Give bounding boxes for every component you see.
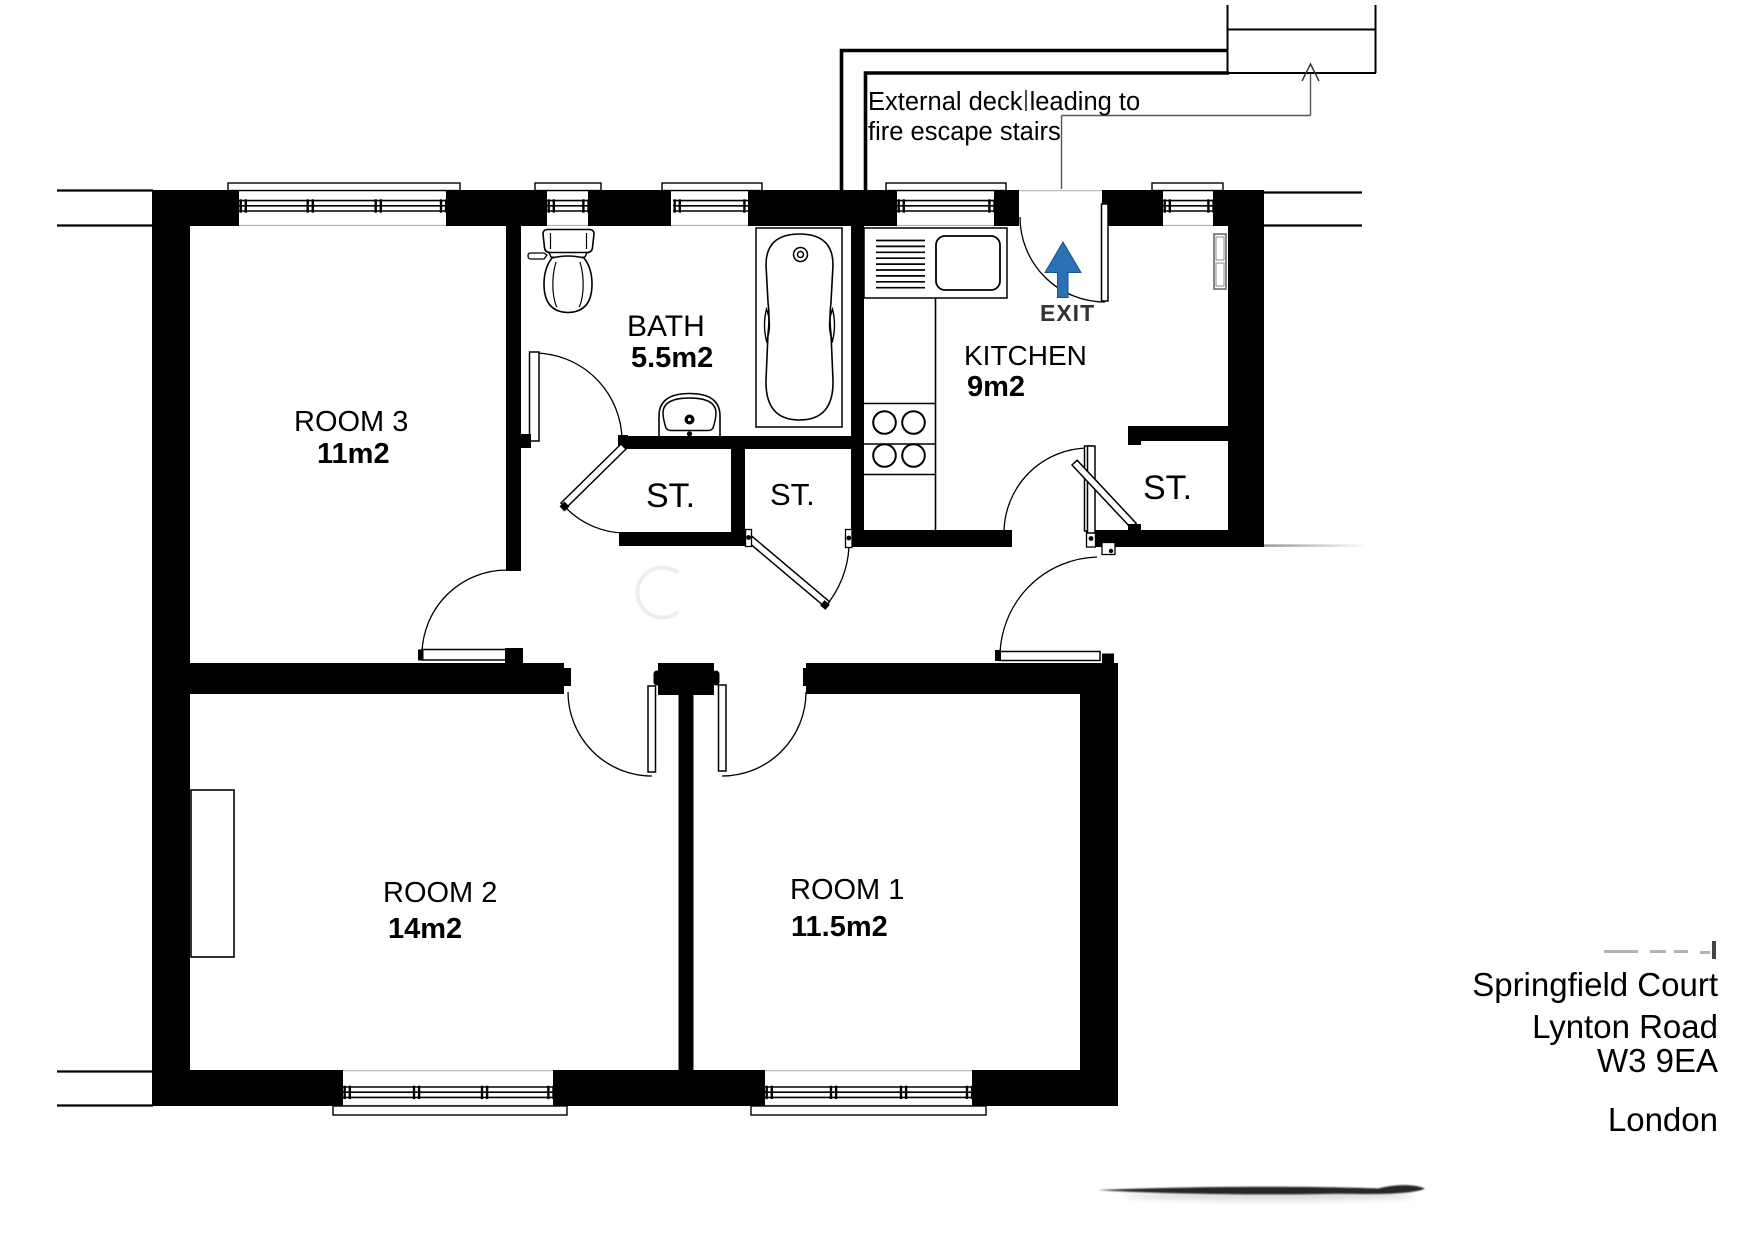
svg-text:ST.: ST. xyxy=(770,477,815,512)
svg-text:5.5m2: 5.5m2 xyxy=(631,342,713,374)
svg-text:ST.: ST. xyxy=(1143,469,1192,507)
svg-text:ROOM 3: ROOM 3 xyxy=(294,406,408,438)
svg-text:11.5m2: 11.5m2 xyxy=(791,911,888,943)
svg-text:London: London xyxy=(1608,1101,1718,1138)
svg-text:BATH: BATH xyxy=(627,310,705,343)
svg-text:KITCHEN: KITCHEN xyxy=(964,340,1087,371)
svg-text:11m2: 11m2 xyxy=(317,438,390,470)
svg-text:ST.: ST. xyxy=(646,477,695,515)
svg-text:Springfield Court: Springfield Court xyxy=(1472,966,1718,1003)
svg-text:Lynton Road: Lynton Road xyxy=(1532,1008,1718,1045)
svg-text:14m2: 14m2 xyxy=(388,913,462,945)
svg-text:EXIT: EXIT xyxy=(1040,300,1095,326)
svg-text:9m2: 9m2 xyxy=(967,371,1025,403)
svg-text:W3 9EA: W3 9EA xyxy=(1597,1042,1718,1079)
svg-text:ROOM 2: ROOM 2 xyxy=(383,877,497,909)
svg-text:fire escape stairs: fire escape stairs xyxy=(868,118,1061,146)
svg-text:ROOM 1: ROOM 1 xyxy=(790,874,904,906)
svg-text:External deck leading to: External deck leading to xyxy=(868,88,1140,116)
